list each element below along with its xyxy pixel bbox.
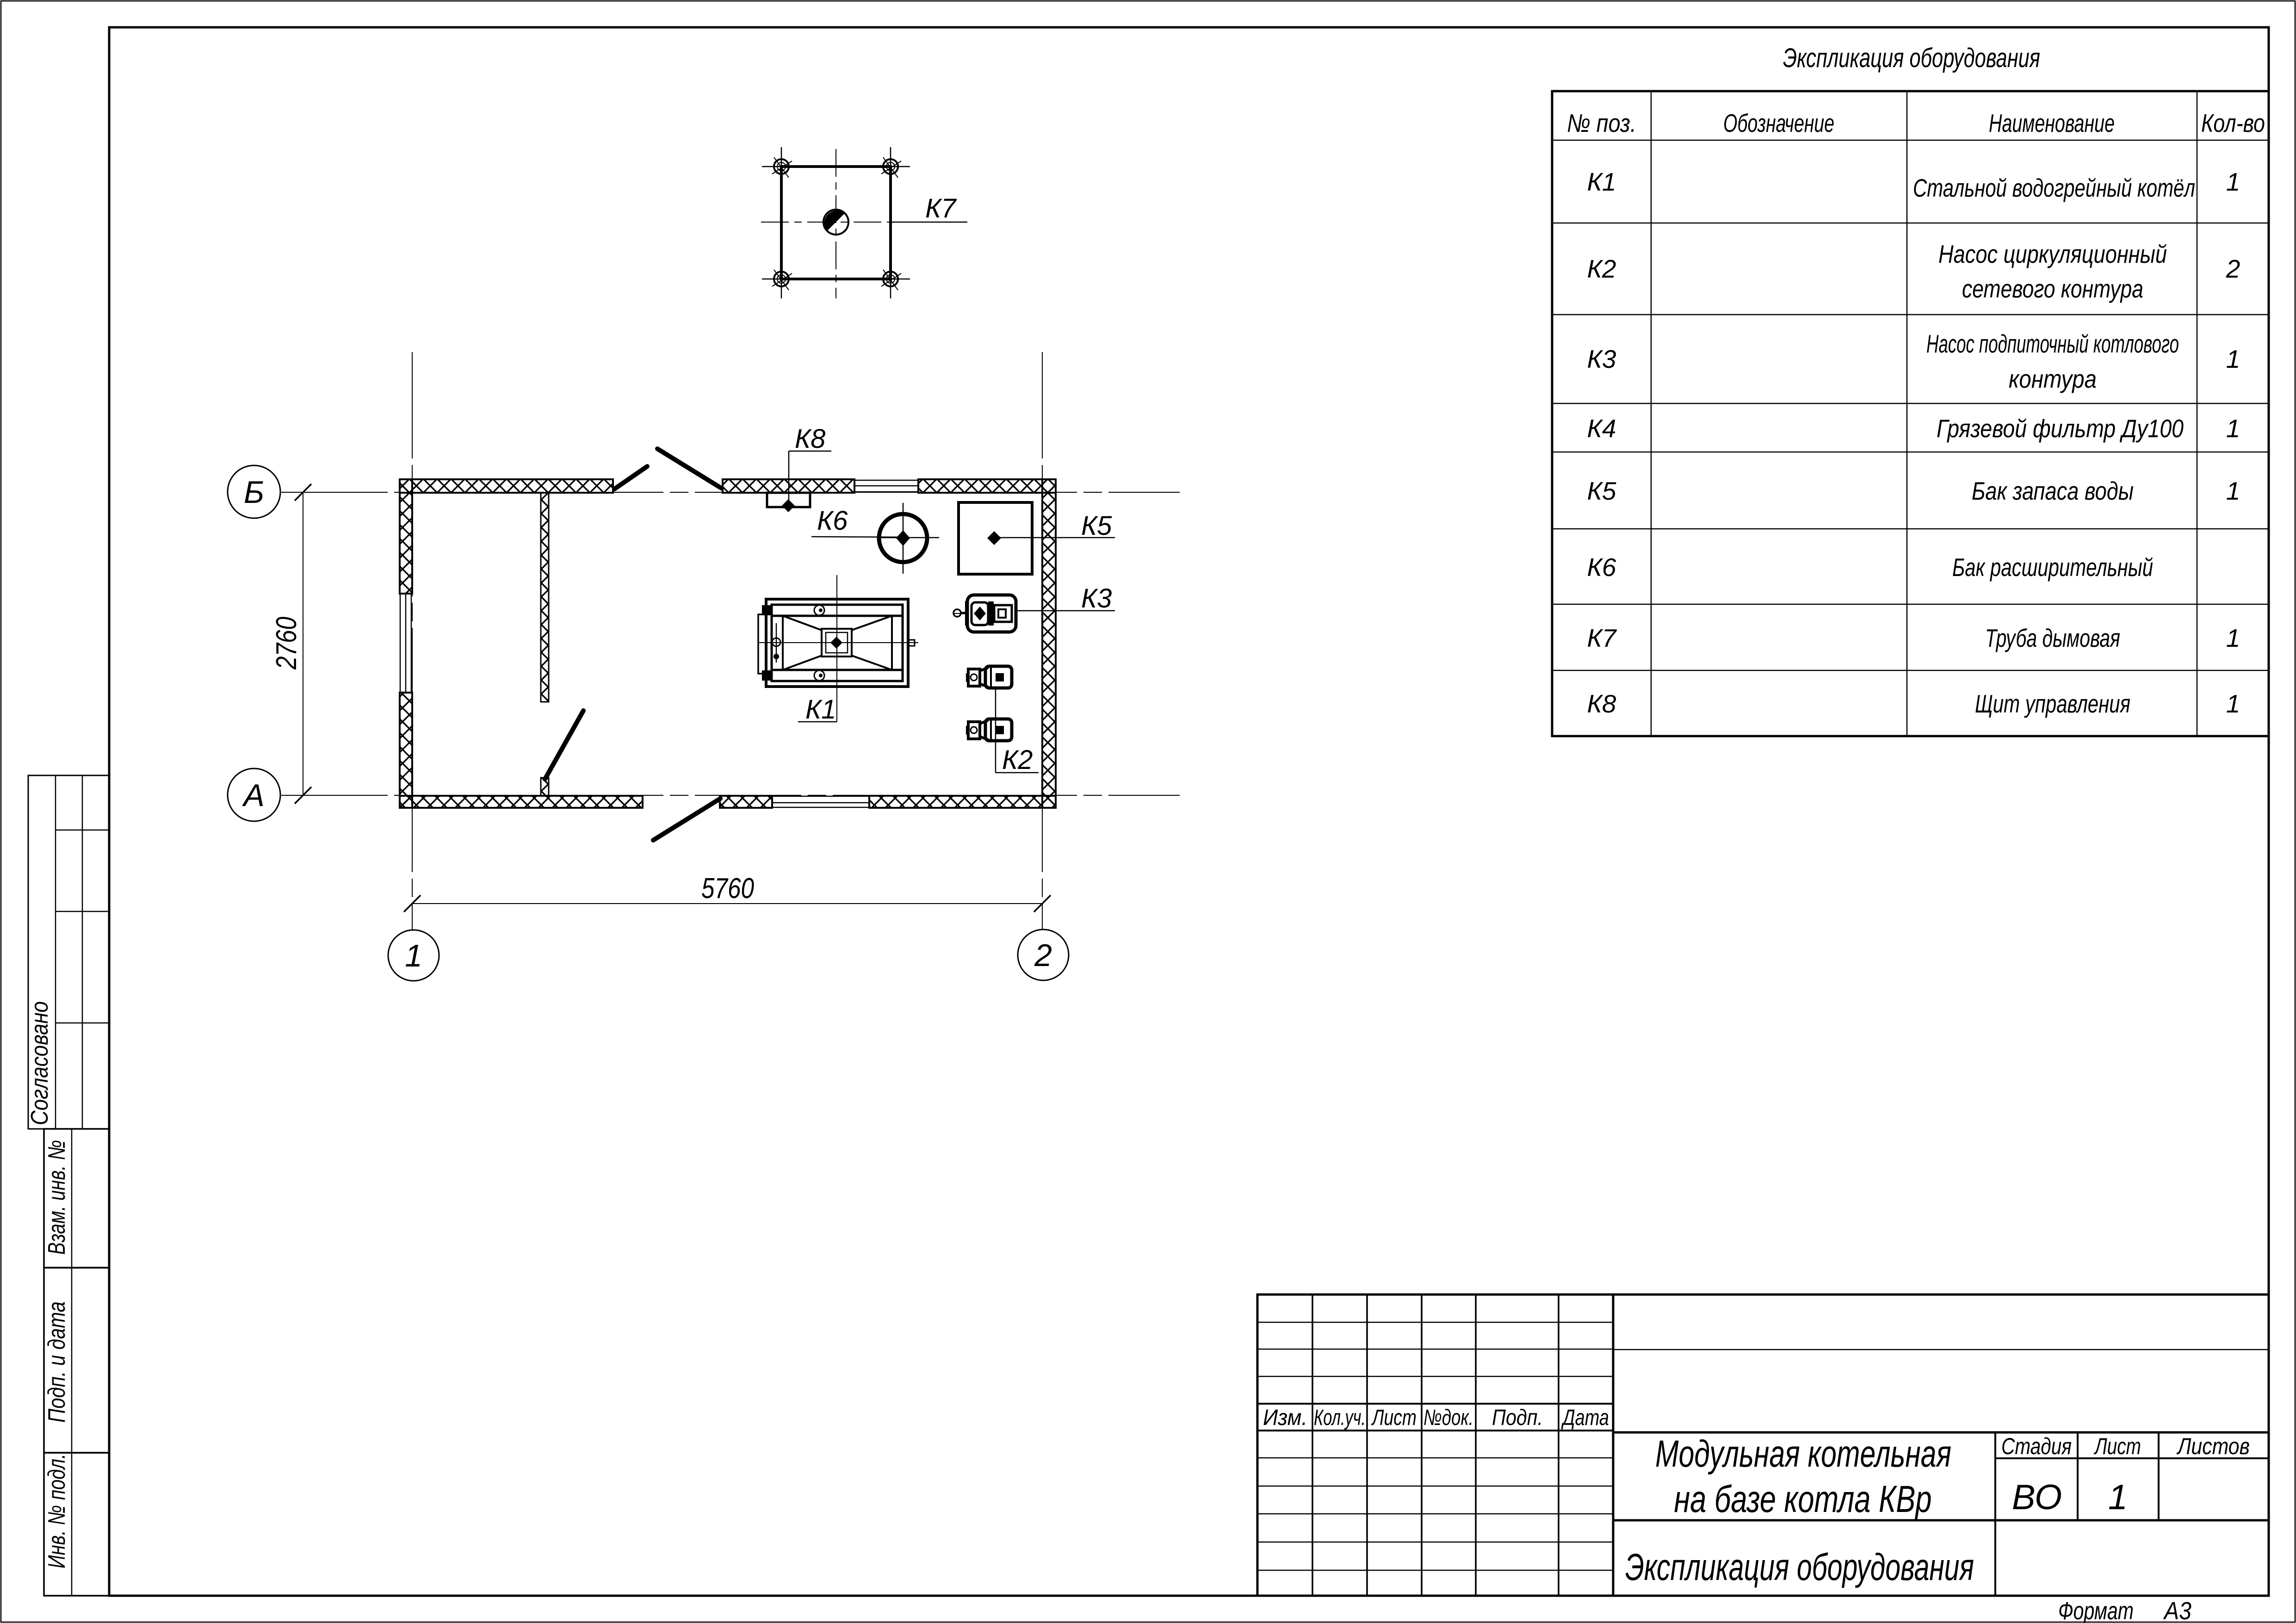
- svg-text:на базе котла КВр: на базе котла КВр: [1674, 1478, 1932, 1520]
- svg-text:Бак запаса воды: Бак запаса воды: [1972, 477, 2134, 505]
- svg-text:1: 1: [2226, 345, 2240, 373]
- svg-text:Стадия: Стадия: [2001, 1433, 2072, 1459]
- svg-text:Листов: Листов: [2176, 1433, 2250, 1459]
- svg-text:1: 1: [2226, 689, 2240, 718]
- svg-text:№ поз.: № поз.: [1567, 109, 1636, 137]
- svg-text:Модульная котельная: Модульная котельная: [1655, 1433, 1951, 1475]
- svg-text:ВО: ВО: [2012, 1478, 2062, 1517]
- svg-text:К7: К7: [1587, 624, 1617, 652]
- svg-text:Кол.уч.: Кол.уч.: [1314, 1406, 1366, 1430]
- svg-text:1: 1: [2226, 414, 2240, 443]
- svg-text:Труба дымовая: Труба дымовая: [1985, 624, 2120, 652]
- svg-text:Изм.: Изм.: [1263, 1406, 1307, 1430]
- svg-text:5760: 5760: [701, 873, 754, 904]
- svg-text:К8: К8: [1587, 689, 1616, 718]
- svg-text:Стальной водогрейный котёл: Стальной водогрейный котёл: [1913, 173, 2195, 202]
- svg-text:К1: К1: [1587, 167, 1616, 196]
- svg-text:К3: К3: [1587, 345, 1616, 373]
- svg-text:Наименование: Наименование: [1989, 109, 2115, 137]
- svg-text:1: 1: [2226, 477, 2240, 505]
- svg-text:Щит управления: Щит управления: [1975, 689, 2130, 718]
- svg-text:Формат: Формат: [2058, 1597, 2134, 1623]
- svg-text:1: 1: [2226, 624, 2240, 652]
- svg-text:Подп. и дата: Подп. и дата: [43, 1301, 70, 1423]
- svg-text:Лист: Лист: [1371, 1406, 1417, 1430]
- svg-text:Взам. инв. №: Взам. инв. №: [43, 1140, 70, 1255]
- svg-text:Согласовано: Согласовано: [26, 1001, 53, 1125]
- svg-text:Подп.: Подп.: [1492, 1406, 1543, 1430]
- svg-text:К5: К5: [1587, 477, 1616, 505]
- svg-text:Обозначение: Обозначение: [1723, 109, 1834, 137]
- svg-text:контура: контура: [2009, 365, 2097, 393]
- svg-text:Бак расширительный: Бак расширительный: [1952, 553, 2153, 582]
- svg-text:Экспликация оборудования: Экспликация оборудования: [1625, 1546, 1974, 1588]
- svg-text:К6: К6: [1587, 553, 1616, 582]
- svg-text:Экспликация оборудования: Экспликация оборудования: [1783, 43, 2040, 73]
- svg-text:сетевого контура: сетевого контура: [1962, 274, 2143, 303]
- svg-text:К4: К4: [1587, 414, 1616, 443]
- svg-text:Б: Б: [244, 475, 264, 510]
- svg-text:А3: А3: [2163, 1597, 2191, 1623]
- svg-text:Насос подпиточный котлового: Насос подпиточный котлового: [1926, 329, 2179, 358]
- svg-text:К7: К7: [925, 193, 957, 223]
- svg-text:К8: К8: [795, 424, 825, 454]
- svg-text:Дата: Дата: [1561, 1406, 1609, 1430]
- svg-text:К5: К5: [1081, 511, 1112, 541]
- svg-text:1: 1: [2108, 1478, 2128, 1517]
- svg-text:Грязевой фильтр Ду100: Грязевой фильтр Ду100: [1937, 414, 2184, 443]
- svg-text:2: 2: [1034, 938, 1052, 973]
- svg-text:А: А: [241, 778, 264, 813]
- svg-text:К3: К3: [1081, 583, 1112, 613]
- svg-text:Инв. № подл.: Инв. № подл.: [43, 1454, 70, 1568]
- svg-text:Кол-во: Кол-во: [2201, 109, 2265, 137]
- svg-text:2: 2: [2226, 254, 2240, 283]
- svg-text:1: 1: [405, 938, 422, 973]
- svg-text:К2: К2: [1002, 745, 1033, 775]
- svg-text:2760: 2760: [271, 617, 303, 670]
- svg-text:К6: К6: [817, 506, 848, 536]
- svg-text:К2: К2: [1587, 254, 1616, 283]
- svg-text:Насос циркуляционный: Насос циркуляционный: [1938, 240, 2167, 268]
- svg-text:№док.: №док.: [1423, 1406, 1473, 1430]
- svg-text:Лист: Лист: [2094, 1433, 2141, 1459]
- svg-text:1: 1: [2226, 167, 2240, 196]
- svg-text:К1: К1: [805, 694, 836, 725]
